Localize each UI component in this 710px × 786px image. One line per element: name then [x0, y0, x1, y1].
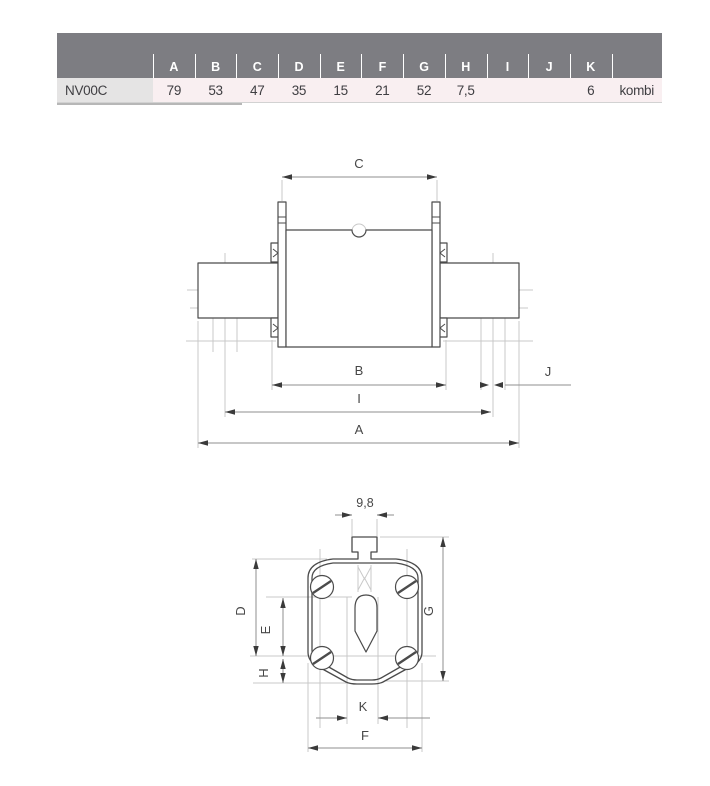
dim-label-f: F	[361, 728, 369, 743]
dim-label-d: D	[233, 606, 248, 615]
value-a: 79	[153, 78, 195, 102]
table-shadow-line	[57, 103, 242, 105]
value-f: 21	[361, 78, 403, 102]
dim-label-j: J	[545, 364, 552, 379]
value-i	[487, 78, 529, 102]
datasheet-page: A B C D E F G H I J K NV00C 79 53 47 35 …	[0, 0, 710, 786]
col-header-b: B	[195, 33, 237, 78]
dim-label-a: A	[355, 422, 364, 437]
value-b: 53	[195, 78, 237, 102]
dim-label-e: E	[258, 625, 273, 634]
front-view-drawing: 9,8 D E H G K F	[233, 496, 449, 752]
col-header-g: G	[403, 33, 445, 78]
fuse-body	[286, 230, 432, 347]
dim-label-9-8: 9,8	[356, 496, 373, 510]
col-header-a: A	[153, 33, 195, 78]
fuse-technical-drawings: C B J I A	[0, 110, 710, 786]
blade-contact-right	[440, 263, 519, 318]
dim-label-k: K	[359, 699, 368, 714]
value-kombi: kombi	[612, 78, 662, 102]
col-header-f: F	[361, 33, 403, 78]
value-j	[528, 78, 570, 102]
dim-label-i: I	[357, 391, 361, 406]
table-header-row: A B C D E F G H I J K	[57, 33, 662, 78]
col-header-k: K	[570, 33, 612, 78]
col-header-d: D	[278, 33, 320, 78]
col-header-blank	[57, 33, 153, 78]
value-h: 7,5	[445, 78, 487, 102]
table-data-row: NV00C 79 53 47 35 15 21 52 7,5 6 kombi	[57, 78, 662, 103]
col-header-e: E	[320, 33, 362, 78]
value-d: 35	[278, 78, 320, 102]
side-view-drawing: C B J I A	[186, 156, 571, 448]
value-e: 15	[320, 78, 362, 102]
row-label: NV00C	[57, 78, 153, 102]
col-header-j: J	[528, 33, 570, 78]
dim-label-g: G	[421, 606, 436, 616]
dim-label-c: C	[354, 156, 363, 171]
value-k: 6	[570, 78, 612, 102]
blade-contact-left	[198, 263, 278, 318]
dimension-table: A B C D E F G H I J K NV00C 79 53 47 35 …	[57, 33, 662, 103]
value-c: 47	[236, 78, 278, 102]
col-header-i: I	[487, 33, 529, 78]
front-view-dimensions: 9,8 D E H G K F	[233, 496, 443, 748]
dim-label-h: H	[256, 668, 271, 677]
end-plate-lug-left	[278, 202, 286, 347]
col-header-c: C	[236, 33, 278, 78]
end-plate-lug-right	[432, 202, 440, 347]
col-header-h: H	[445, 33, 487, 78]
front-view-construction-lines	[250, 519, 449, 752]
dim-label-b: B	[355, 363, 364, 378]
col-header-kombi	[612, 33, 662, 78]
center-slot	[355, 595, 377, 652]
value-g: 52	[403, 78, 445, 102]
